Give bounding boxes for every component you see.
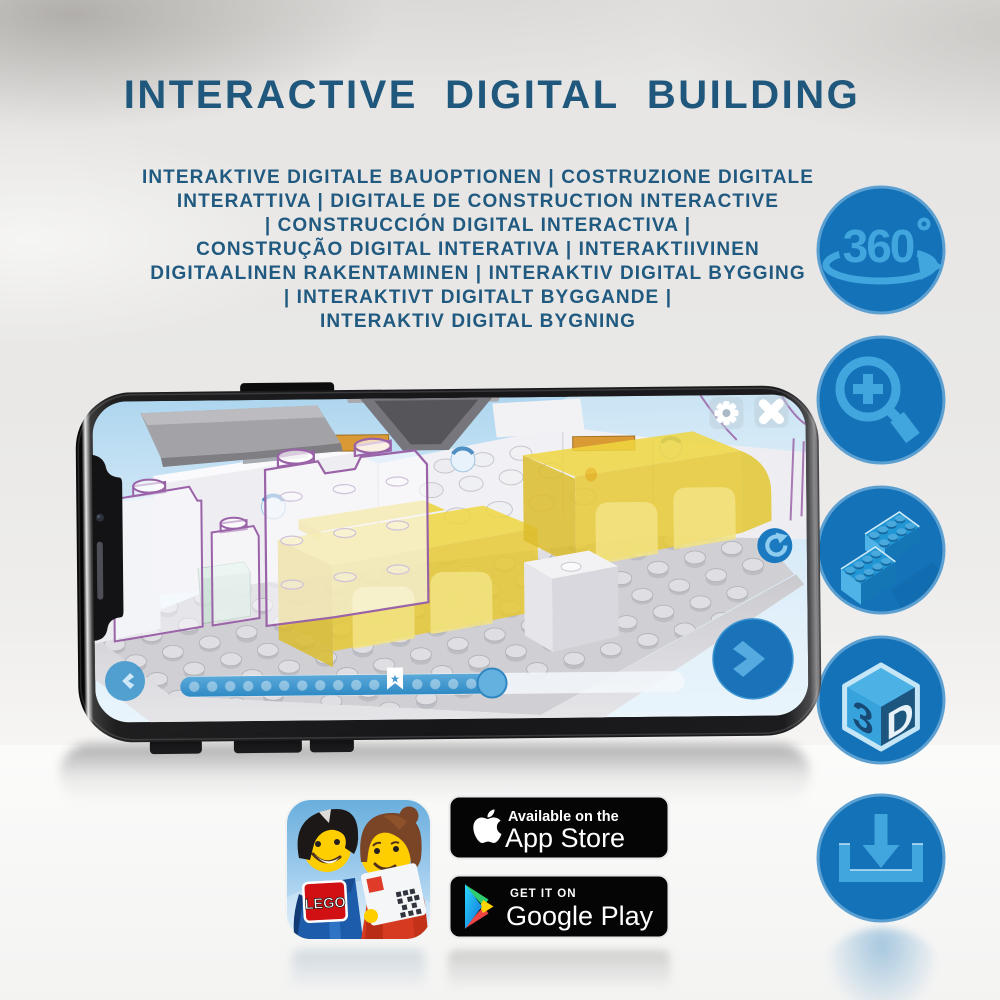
svg-text:360: 360 bbox=[843, 220, 914, 272]
svg-text:Google Play: Google Play bbox=[506, 901, 654, 931]
svg-text:★: ★ bbox=[390, 674, 400, 686]
svg-text:GET IT ON: GET IT ON bbox=[510, 888, 577, 900]
svg-text:LEGO: LEGO bbox=[304, 895, 346, 913]
svg-text:App Store: App Store bbox=[505, 823, 625, 853]
